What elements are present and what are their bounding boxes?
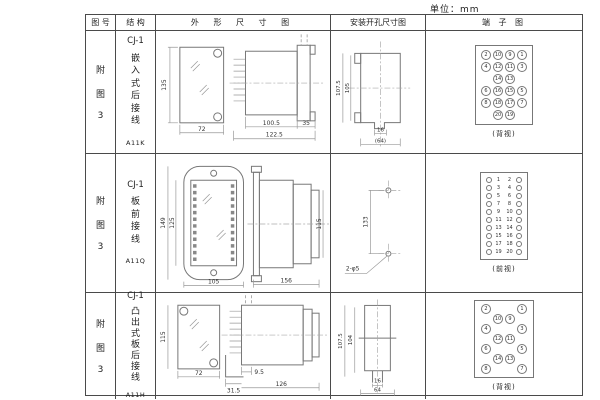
dim-install-h1: 16 [377, 128, 384, 134]
terminal-diagram-a11q: 1234567891011121314151617181920 (前视) [480, 172, 528, 275]
terminal-number: 18 [505, 241, 514, 247]
terminal-number: 5 [494, 193, 503, 199]
install-diagram-a11k: 107.5 105 16 (64) [331, 31, 425, 153]
terminal-view-caption: (背视) [492, 129, 515, 139]
terminal-cell: 2110943121165141387 (背视) [426, 293, 582, 399]
terminal-row: 21 [481, 304, 527, 314]
table-row: 附图3 CJ-1 嵌入式后接线 A11K 135 [86, 31, 582, 154]
dim-side-depth: 100.5 [263, 120, 280, 127]
terminal-number: 19 [494, 249, 503, 255]
dim-front-outer-height: 149 [160, 217, 167, 229]
terminal-spacer [481, 314, 491, 324]
header-install-holes: 安装开孔尺寸图 [331, 15, 426, 30]
dim-side-length: 156 [281, 278, 293, 285]
vertical-char: 3 [98, 111, 104, 121]
terminal-number: 10 [505, 209, 514, 215]
figure-no-cell: 附图3 [86, 31, 116, 153]
vertical-char: 附 [96, 63, 105, 76]
terminal-pin: 9 [505, 314, 515, 324]
terminal-number: 14 [505, 225, 514, 231]
terminal-pin: 5 [517, 344, 527, 354]
terminal-pin: 5 [517, 86, 527, 96]
terminal-pin [516, 233, 522, 239]
terminal-pin: 19 [505, 110, 515, 120]
terminal-number: 9 [494, 209, 503, 215]
vertical-char: 线 [131, 234, 140, 247]
terminal-row: 412113 [481, 62, 527, 72]
vertical-char: 接 [131, 362, 140, 373]
terminal-pin: 3 [517, 62, 527, 72]
dim-front-height: 115 [160, 331, 167, 343]
terminal-pin: 2 [481, 50, 491, 60]
terminal-number: 13 [494, 225, 503, 231]
terminal-number: 17 [494, 241, 503, 247]
structure-title: CJ-1 [127, 179, 144, 192]
terminal-number: 7 [494, 201, 503, 207]
terminal-row: 87 [481, 364, 527, 374]
vertical-char: 式 [131, 329, 140, 340]
terminal-row: 1314 [486, 225, 522, 232]
terminal-row: 818177 [481, 98, 527, 108]
terminal-pin: 12 [493, 334, 503, 344]
spec-table: 图 号 结 构 外 形 尺 寸 图 安装开孔尺寸图 端 子 图 附图3 CJ-1… [85, 14, 583, 396]
terminal-pin [516, 225, 522, 231]
structure-text: CJ-1 凸出式板后接线 A11H [126, 291, 146, 400]
terminal-pin: 6 [481, 86, 491, 96]
structure-title: CJ-1 [127, 291, 144, 302]
terminal-pin [516, 209, 522, 215]
terminal-spacer [517, 334, 527, 344]
terminal-diagram-a11k: 2109141211314136161558181772019 (背视) [475, 45, 533, 139]
vertical-char: 后 [131, 90, 140, 103]
terminal-pin: 8 [481, 98, 491, 108]
terminal-row: 910 [486, 209, 522, 216]
vertical-char: 3 [98, 365, 104, 375]
terminal-pin: 11 [505, 334, 515, 344]
terminal-number: 12 [505, 217, 514, 223]
terminal-box: 2109141211314136161558181772019 [475, 45, 533, 125]
terminal-pin: 1 [517, 304, 527, 314]
terminal-pin: 2 [481, 304, 491, 314]
document-page: 单位：mm 图 号 结 构 外 形 尺 寸 图 安装开孔尺寸图 端 子 图 附图… [0, 0, 600, 400]
terminal-cell: 2109141211314136161558181772019 (背视) [426, 31, 582, 153]
terminal-row: 1413 [481, 74, 527, 84]
vertical-char: 板 [131, 340, 140, 351]
terminal-number: 11 [494, 217, 503, 223]
terminal-row: 2019 [481, 110, 527, 120]
terminal-pin: 10 [493, 50, 503, 60]
terminal-row: 12 [486, 177, 522, 184]
terminal-box: 1234567891011121314151617181920 [480, 172, 528, 261]
terminal-cell: 1234567891011121314151617181920 (前视) [426, 154, 582, 292]
terminal-pin: 16 [493, 86, 503, 96]
structure-chars: 嵌入式后接线 [131, 53, 140, 128]
terminal-number: 8 [505, 201, 514, 207]
terminal-row: 616155 [481, 86, 527, 96]
dim-front-height: 135 [161, 79, 168, 91]
outline-cell: 135 72 100.5 35 122.5 [156, 31, 331, 153]
figure-no: 附图3 [96, 63, 105, 121]
terminal-pin: 1 [517, 50, 527, 60]
model-code: A11Q [126, 255, 146, 268]
terminal-row: 1413 [481, 354, 527, 364]
figure-no-cell: 附图3 [86, 154, 116, 292]
terminal-pin: 13 [505, 74, 515, 84]
terminal-pin [486, 193, 492, 199]
dim-install-h2: 64 [374, 388, 381, 394]
header-terminal-diagram: 端 子 图 [426, 15, 582, 30]
terminal-number: 1 [494, 177, 503, 183]
terminal-view-caption: (前视) [492, 264, 515, 274]
vertical-char: 线 [131, 115, 140, 128]
dim-pin-depth: 9.5 [254, 369, 264, 376]
terminal-pin [486, 225, 492, 231]
terminal-row: 1516 [486, 233, 522, 240]
outline-diagram-a11k: 135 72 100.5 35 122.5 [156, 31, 330, 153]
terminal-spacer [517, 354, 527, 364]
outline-diagram-a11h: 115 72 9.5 31.5 126 [156, 293, 330, 399]
terminal-pin [516, 201, 522, 207]
terminal-spacer [493, 304, 503, 314]
table-header-row: 图 号 结 构 外 形 尺 寸 图 安装开孔尺寸图 端 子 图 [86, 15, 582, 31]
terminal-spacer [517, 110, 527, 120]
dim-front-inner-height: 125 [169, 217, 176, 229]
header-structure: 结 构 [116, 15, 156, 30]
install-cell: 107.5 104 16 64 [331, 293, 426, 399]
terminal-pin: 14 [493, 74, 503, 84]
structure-cell: CJ-1 嵌入式后接线 A11K [116, 31, 156, 153]
terminal-pin: 14 [493, 354, 503, 364]
terminal-row: 21091 [481, 50, 527, 60]
terminal-pin: 18 [493, 98, 503, 108]
terminal-number: 2 [505, 177, 514, 183]
terminal-spacer [517, 314, 527, 324]
vertical-char: 入 [131, 65, 140, 78]
terminal-box: 2110943121165141387 [474, 300, 534, 378]
vertical-char: 图 [96, 341, 105, 354]
terminal-row: 34 [486, 185, 522, 192]
dim-install-v1: 107.5 [336, 80, 342, 96]
terminal-pin [516, 241, 522, 247]
terminal-spacer [481, 334, 491, 344]
install-diagram-a11q: 133 2-φ5 [331, 154, 425, 292]
terminal-pin [486, 233, 492, 239]
terminal-spacer [505, 324, 515, 334]
structure-cell: CJ-1 凸出式板后接线 A11H [116, 293, 156, 399]
structure-chars: 凸出式板后接线 [131, 307, 140, 384]
terminal-row: 1718 [486, 241, 522, 248]
outline-cell: 149 125 105 115 156 [156, 154, 331, 292]
structure-cell: CJ-1 板前接线 A11Q [116, 154, 156, 292]
dim-install-v1: 107.5 [338, 333, 344, 349]
vertical-char: 嵌 [131, 53, 140, 66]
terminal-pin: 4 [481, 62, 491, 72]
terminal-spacer [481, 110, 491, 120]
structure-title: CJ-1 [127, 35, 144, 48]
terminal-diagram-a11h: 2110943121165141387 (背视) [474, 300, 534, 392]
structure-text: CJ-1 嵌入式后接线 A11K [126, 35, 145, 149]
terminal-spacer [481, 354, 491, 364]
terminal-pin [486, 249, 492, 255]
terminal-spacer [505, 304, 515, 314]
outline-diagram-a11q: 149 125 105 115 156 [156, 154, 330, 292]
terminal-pin: 7 [517, 98, 527, 108]
vertical-char: 图 [96, 87, 105, 100]
dim-bracket: 31.5 [227, 388, 240, 395]
terminal-pin: 9 [505, 50, 515, 60]
terminal-pin: 4 [481, 324, 491, 334]
terminal-pin [516, 193, 522, 199]
vertical-char: 板 [131, 196, 140, 209]
terminal-pin [486, 177, 492, 183]
terminal-pin: 8 [481, 364, 491, 374]
dim-front-width: 72 [195, 370, 203, 377]
vertical-char: 接 [131, 221, 140, 234]
terminal-pin: 20 [493, 110, 503, 120]
figure-no: 附图3 [96, 317, 105, 375]
terminal-pin: 17 [505, 98, 515, 108]
terminal-row: 78 [486, 201, 522, 208]
dim-install-v2: 105 [345, 83, 351, 93]
terminal-pin: 6 [481, 344, 491, 354]
dim-hole-spacing: 133 [363, 216, 370, 228]
table-row: 附图3 CJ-1 凸出式板后接线 A11H 115 [86, 293, 582, 399]
terminal-pin [486, 185, 492, 191]
terminal-row: 65 [481, 344, 527, 354]
vertical-char: 线 [131, 373, 140, 384]
terminal-spacer [493, 364, 503, 374]
model-code: A11H [126, 390, 146, 400]
vertical-char: 附 [96, 317, 105, 330]
terminal-spacer [493, 324, 503, 334]
header-outline-dims: 外 形 尺 寸 图 [156, 15, 331, 30]
terminal-row: 1112 [486, 217, 522, 224]
vertical-char: 式 [131, 78, 140, 91]
outline-cell: 115 72 9.5 31.5 126 [156, 293, 331, 399]
table-row: 附图3 CJ-1 板前接线 A11Q [86, 154, 582, 293]
terminal-pin [516, 217, 522, 223]
hole-spec-label: 2-φ5 [346, 265, 360, 272]
dim-install-h1: 16 [374, 379, 381, 385]
dim-install-h2: (64) [375, 138, 386, 144]
terminal-row: 1920 [486, 249, 522, 256]
model-code: A11K [126, 137, 145, 150]
vertical-char: 接 [131, 103, 140, 116]
terminal-pin [516, 177, 522, 183]
figure-no-cell: 附图3 [86, 293, 116, 399]
vertical-char: 3 [98, 242, 104, 252]
vertical-char: 出 [131, 318, 140, 329]
install-cell: 107.5 105 16 (64) [331, 31, 426, 153]
dim-side-total: 122.5 [266, 132, 283, 139]
terminal-pin [486, 209, 492, 215]
vertical-char: 前 [131, 209, 140, 222]
figure-no: 附图3 [96, 194, 105, 252]
terminal-pin: 3 [517, 324, 527, 334]
terminal-number: 20 [505, 249, 514, 255]
dim-side-height: 115 [316, 218, 323, 230]
terminal-row: 43 [481, 324, 527, 334]
dim-side-flange: 35 [302, 120, 310, 127]
terminal-pin [516, 185, 522, 191]
terminal-pin: 11 [505, 62, 515, 72]
install-cell: 133 2-φ5 [331, 154, 426, 292]
terminal-number: 6 [505, 193, 514, 199]
structure-chars: 板前接线 [131, 196, 140, 246]
terminal-pin: 12 [493, 62, 503, 72]
terminal-pin: 7 [517, 364, 527, 374]
vertical-char: 附 [96, 194, 105, 207]
terminal-pin: 15 [505, 86, 515, 96]
terminal-pin [486, 241, 492, 247]
terminal-number: 3 [494, 185, 503, 191]
vertical-char: 后 [131, 351, 140, 362]
terminal-pin [486, 201, 492, 207]
terminal-number: 15 [494, 233, 503, 239]
terminal-spacer [517, 74, 527, 84]
dim-body-length: 126 [276, 381, 288, 388]
terminal-pin [486, 217, 492, 223]
terminal-spacer [505, 344, 515, 354]
dim-front-width: 72 [198, 126, 206, 133]
terminal-pin [516, 249, 522, 255]
dim-front-width: 105 [208, 279, 220, 286]
terminal-number: 4 [505, 185, 514, 191]
terminal-row: 109 [481, 314, 527, 324]
terminal-view-caption: (背视) [492, 382, 515, 392]
vertical-char: 凸 [131, 307, 140, 318]
terminal-pin: 10 [493, 314, 503, 324]
structure-text: CJ-1 板前接线 A11Q [126, 179, 146, 268]
header-figure-no: 图 号 [86, 15, 116, 30]
terminal-pin: 13 [505, 354, 515, 364]
terminal-spacer [505, 364, 515, 374]
terminal-row: 56 [486, 193, 522, 200]
vertical-char: 图 [96, 218, 105, 231]
terminal-number: 16 [505, 233, 514, 239]
dim-install-v2: 104 [348, 334, 354, 345]
install-diagram-a11h: 107.5 104 16 64 [331, 293, 425, 399]
terminal-spacer [493, 344, 503, 354]
terminal-spacer [481, 74, 491, 84]
terminal-row: 1211 [481, 334, 527, 344]
